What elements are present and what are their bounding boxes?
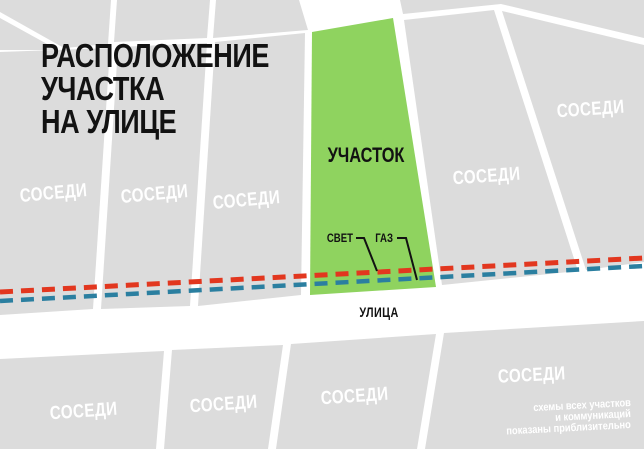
neighbor-label-right-2: СОСЕДИ [556, 95, 625, 122]
neighbor-label-bottom-3: СОСЕДИ [320, 382, 389, 409]
page-title-line-2: УЧАСТКА [41, 72, 164, 108]
neighbor-label-bottom-4: СОСЕДИ [497, 362, 566, 388]
street-label: УЛИЦА [359, 305, 398, 320]
electricity-label: СВЕТ [327, 232, 353, 245]
gas-label: ГАЗ [375, 232, 393, 245]
plot-neighbor-top-2 [114, 0, 210, 42]
neighbor-label-bottom-1: СОСЕДИ [49, 397, 118, 424]
neighbor-label-bottom-2: СОСЕДИ [189, 390, 258, 417]
page-title-line-1: РАСПОЛОЖЕНИЕ [41, 39, 269, 75]
plot-location-diagram: РАСПОЛОЖЕНИЕ УЧАСТКА НА УЛИЦЕ СОСЕДИ СОС… [0, 0, 644, 449]
page-title-line-3: НА УЛИЦЕ [41, 105, 176, 141]
map-svg: РАСПОЛОЖЕНИЕ УЧАСТКА НА УЛИЦЕ СОСЕДИ СОС… [0, 0, 644, 449]
neighbor-label-right-1: СОСЕДИ [452, 162, 521, 189]
uchastok-label: УЧАСТОК [328, 143, 405, 166]
